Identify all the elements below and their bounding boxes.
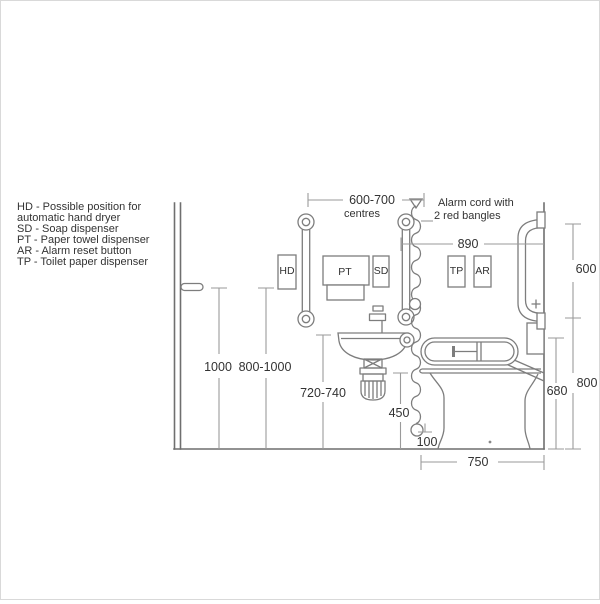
dim-720-740: 720-740 [300, 335, 346, 449]
wall-rail-flange-top [537, 212, 545, 228]
toilet-pan-back [525, 374, 538, 449]
dim-750-value: 750 [468, 455, 489, 469]
dim-450: 450 [389, 373, 410, 449]
toilet-base-fixing-dot [489, 441, 492, 444]
room-outline [174, 203, 544, 449]
hand-dryer-label: HD [279, 265, 295, 277]
dim-890: 890 [401, 237, 544, 251]
rail-flange-top [298, 214, 314, 230]
dim-rail-centres-unit: centres [344, 208, 381, 220]
rail-tube [402, 222, 409, 317]
dim-1000: 1000 [204, 288, 232, 449]
toilet [420, 369, 541, 449]
dim-680-value: 680 [547, 384, 568, 398]
alarm-annotation-line2: 2 red bangles [434, 210, 501, 222]
soap-dispenser-label: SD [374, 265, 389, 277]
dim-680: 680 [547, 338, 568, 449]
trap-cup-hatch [365, 381, 381, 399]
dim-800: 800 [565, 318, 597, 449]
dim-100-value: 100 [417, 435, 438, 449]
grab-rail-wall [518, 212, 545, 329]
alarm-annotation-line1: Alarm cord with [438, 197, 514, 209]
trap-body [363, 374, 383, 381]
basin-tap [370, 306, 386, 333]
trap-nut-upper [360, 368, 386, 374]
door-handle [181, 284, 203, 291]
rail-tube [302, 222, 309, 319]
basin-bowl [338, 333, 408, 360]
grab-rail-vertical-left [298, 214, 314, 327]
rail-end-circle [400, 333, 414, 347]
fixtures: HD PT SD TP AR [278, 199, 545, 449]
rail-flange-bottom [298, 311, 314, 327]
dim-600-value: 600 [576, 262, 597, 276]
wall-rail-inner [526, 228, 545, 314]
dim-600: 600 [565, 224, 596, 318]
dim-rail-centres-value: 600-700 [349, 193, 395, 207]
toilet-paper-label: TP [450, 265, 463, 277]
wall-rail-fixing-cross [532, 300, 541, 309]
wall-rail-outer [518, 220, 544, 322]
dim-720-740-value: 720-740 [300, 386, 346, 400]
dim-890-value: 890 [458, 237, 479, 251]
alarm-cord-annotation: Alarm cord with 2 red bangles [421, 197, 514, 222]
alarm-reset-label: AR [475, 265, 490, 277]
accessible-wc-elevation-diagram: HD - Possible position for automatic han… [0, 0, 600, 600]
drop-down-rail [421, 323, 544, 381]
dim-750: 750 [421, 455, 544, 470]
wall-left [175, 203, 181, 449]
paper-towel-label: PT [338, 266, 352, 278]
alarm-cord-bangle-upper [410, 299, 421, 310]
dim-450-value: 450 [389, 406, 410, 420]
paper-towel-chute [327, 285, 364, 300]
dim-800-1000: 800-1000 [239, 288, 292, 449]
diagram-svg: HD - Possible position for automatic han… [1, 1, 599, 599]
dim-1000-value: 1000 [204, 360, 232, 374]
legend: HD - Possible position for automatic han… [17, 201, 150, 268]
dim-800-value: 800 [577, 376, 598, 390]
legend-line-tp: TP - Toilet paper dispenser [17, 256, 148, 268]
wall-rail-flange-bottom [537, 313, 545, 329]
basin-trap [360, 359, 386, 400]
dim-800-1000-value: 800-1000 [239, 360, 292, 374]
